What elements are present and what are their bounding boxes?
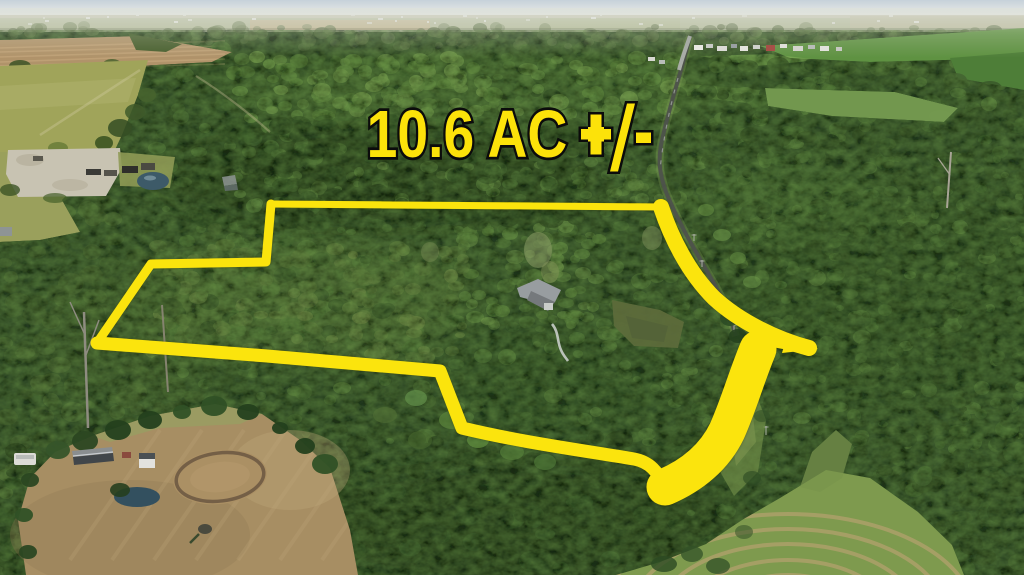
svg-text:10.6 AC: 10.6 AC bbox=[367, 97, 568, 172]
